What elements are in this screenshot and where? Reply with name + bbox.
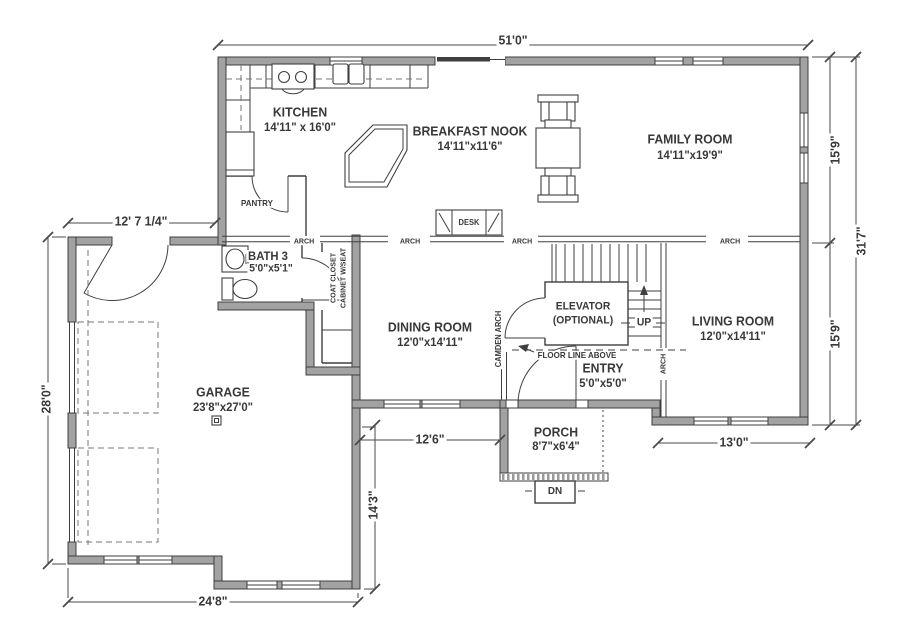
dim-right-lower: 15'9" <box>829 318 842 351</box>
dim-right-upper: 15'9" <box>829 134 842 167</box>
garage-size: 23'8"x27'0" <box>191 401 255 413</box>
family-room-size: 14'11"x19'9" <box>655 149 724 161</box>
kitchen-label: KITCHEN <box>271 106 329 119</box>
down-label: DN <box>546 486 564 497</box>
kitchen-size: 14'11" x 16'0" <box>262 121 338 133</box>
elevator-qualifier: (OPTIONAL) <box>551 316 615 327</box>
sink-icon <box>333 64 348 84</box>
porch-label: PORCH <box>532 426 580 439</box>
garage-post <box>212 416 221 425</box>
camden-arch-label: CAMDEN ARCH <box>495 309 503 369</box>
dim-garage-bottom: 24'8" <box>197 595 230 608</box>
dim-garage-offset: 12' 7 1/4" <box>113 215 170 228</box>
living-room-label: LIVING ROOM <box>690 315 776 328</box>
dim-right-total: 31'7" <box>855 225 868 258</box>
bath3-size: 5'0"x5'1" <box>247 264 294 275</box>
toilet-icon <box>222 278 233 300</box>
dining-room-size: 12'0"x14'11" <box>395 336 464 348</box>
entry-label: ENTRY <box>581 362 626 375</box>
pantry-label: PANTRY <box>239 199 275 208</box>
desk-label: DESK <box>457 219 482 227</box>
dim-living-width: 13'0" <box>718 436 751 449</box>
garage-label: GARAGE <box>194 386 251 399</box>
elevator-label: ELEVATOR <box>554 302 612 313</box>
kitchen-island <box>345 125 407 187</box>
arch-label-1: ARCH <box>292 237 316 245</box>
arch-label-3: ARCH <box>510 237 534 245</box>
dim-garage-side: 28'0" <box>40 383 53 416</box>
arch-label-4: ARCH <box>718 237 742 245</box>
up-label: UP <box>635 318 653 329</box>
stairs <box>512 244 686 352</box>
entry-size: 5'0"x5'0" <box>577 377 628 389</box>
fridge-icon <box>226 132 254 176</box>
family-room-label: FAMILY ROOM <box>646 133 735 146</box>
dining-room-label: DINING ROOM <box>386 321 474 334</box>
dim-overall-width: 51'0" <box>497 34 530 47</box>
floor-plan: 51'0" 12' 7 1/4" 28'0" 24'8" 14'3" 12'6"… <box>0 0 900 628</box>
arch-label-vertical: ARCH <box>659 352 667 376</box>
floor-line-label: FLOOR LINE ABOVE <box>536 351 618 360</box>
living-room-size: 12'0"x14'11" <box>698 330 767 342</box>
dim-garage-depth: 14'3" <box>367 489 380 522</box>
breakfast-table-icon <box>536 95 580 202</box>
arch-label-2: ARCH <box>398 237 422 245</box>
coat-closet-label-2: CABINET W/SEAT <box>339 246 347 310</box>
breakfast-nook-label: BREAKFAST NOOK <box>411 125 529 138</box>
coat-closet-label-1: COAT CLOSET <box>329 251 337 305</box>
breakfast-nook-size: 14'11"x11'6" <box>436 140 505 152</box>
porch-size: 8'7"x6'4" <box>530 440 581 452</box>
dim-dining-width: 12'6" <box>414 433 447 446</box>
bath3-label: BATH 3 <box>246 250 290 262</box>
